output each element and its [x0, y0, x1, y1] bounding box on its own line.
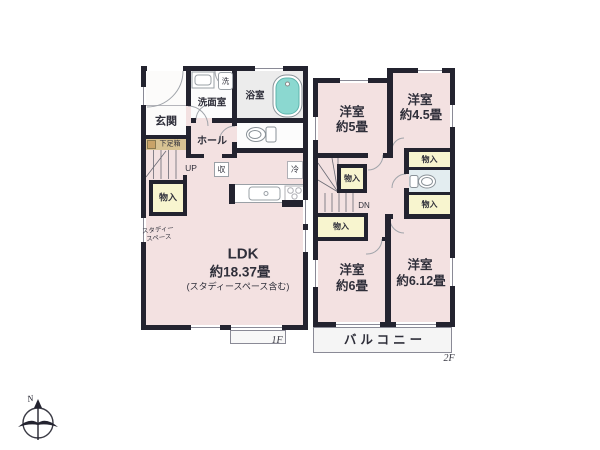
wall [237, 118, 303, 123]
wall [149, 180, 187, 184]
room-label-bedroom6-size: 約6畳 [336, 280, 368, 293]
room-label-bedroom5-size: 約5畳 [336, 121, 368, 134]
wall [404, 167, 455, 170]
balcony-label: バルコニー [344, 334, 426, 347]
closet-label: 物入 [333, 223, 349, 231]
window-marker [313, 260, 318, 287]
compass-icon: N [18, 393, 58, 440]
wall [222, 154, 237, 158]
closet-label: 物入 [422, 156, 438, 164]
room-label-hall: ホール [197, 137, 227, 147]
room-label-bedroom6: 洋室 [339, 264, 364, 277]
window-marker [231, 325, 282, 330]
window-marker [255, 66, 283, 71]
wall [318, 213, 368, 217]
floor2-label: 2F [443, 354, 454, 364]
wall [404, 148, 455, 152]
floor1-label: 1F [271, 336, 282, 346]
wall [387, 68, 393, 83]
wall [363, 164, 367, 193]
room-label-bedroom612-size: 約6.12畳 [396, 275, 445, 288]
window-marker [141, 87, 146, 105]
toilet-room-1f [237, 123, 303, 148]
wall [387, 83, 393, 153]
wall [141, 325, 308, 330]
room-label-bedroom612: 洋室 [407, 259, 432, 272]
room-label-bedroom45: 洋室 [407, 94, 432, 107]
wall [212, 118, 232, 123]
wall [141, 66, 146, 330]
label-shoe-cabinet: 下足箱 [160, 141, 181, 148]
wall [237, 148, 303, 153]
wall [191, 118, 196, 123]
room-label-ldk-size: 約18.37畳 [210, 265, 271, 279]
room-label-ldk: LDK [228, 247, 259, 262]
window-marker [313, 117, 318, 140]
wall [318, 153, 368, 158]
wall [404, 214, 455, 219]
wall [313, 78, 318, 327]
label-storage: 収 [218, 166, 226, 174]
wall [303, 66, 308, 330]
window-marker [303, 200, 308, 224]
window-marker [191, 325, 220, 330]
room-label-washroom: 洗面室 [198, 98, 227, 108]
wall [318, 237, 366, 241]
closet-label: 物入 [422, 201, 438, 209]
floor-plan-canvas: N [0, 0, 600, 450]
compass-north-label: N [25, 393, 35, 404]
entrance-step-line [146, 105, 186, 106]
label-fridge: 冷 [291, 166, 299, 174]
wall [229, 184, 235, 204]
wall [186, 126, 191, 154]
label-laundry: 洗 [222, 77, 230, 85]
wall [232, 118, 237, 126]
window-marker [340, 78, 368, 83]
window-marker [418, 68, 442, 73]
window-marker [450, 258, 455, 286]
wall [149, 212, 187, 216]
wall [404, 192, 455, 195]
wall [149, 180, 153, 216]
wall [146, 135, 186, 139]
closet-label: 物入 [159, 194, 177, 203]
entrance-door-opening [147, 66, 183, 71]
wall [404, 148, 409, 174]
label-stairs-down: DN [358, 202, 370, 210]
room-label-ldk-note: (スタディースペース含む) [187, 283, 290, 292]
wall [364, 213, 368, 241]
room-label-bathroom: 浴室 [245, 91, 264, 101]
room-label-bedroom45-size: 約4.5畳 [400, 109, 442, 122]
closet-label: 物入 [344, 175, 360, 183]
floor2-top-mask [313, 68, 387, 78]
wall [186, 66, 191, 106]
shoe-cabinet-box [147, 140, 156, 149]
wall [382, 237, 385, 241]
wall [385, 219, 391, 322]
wall [383, 153, 393, 158]
toilet-room-2f [409, 170, 450, 192]
label-stairs-up: UP [185, 164, 197, 173]
room-label-bedroom5: 洋室 [339, 106, 364, 119]
wall [186, 154, 204, 158]
wall [183, 175, 187, 216]
room-label-entrance: 玄関 [155, 117, 177, 128]
window-marker [303, 230, 308, 252]
window-marker [450, 105, 455, 127]
